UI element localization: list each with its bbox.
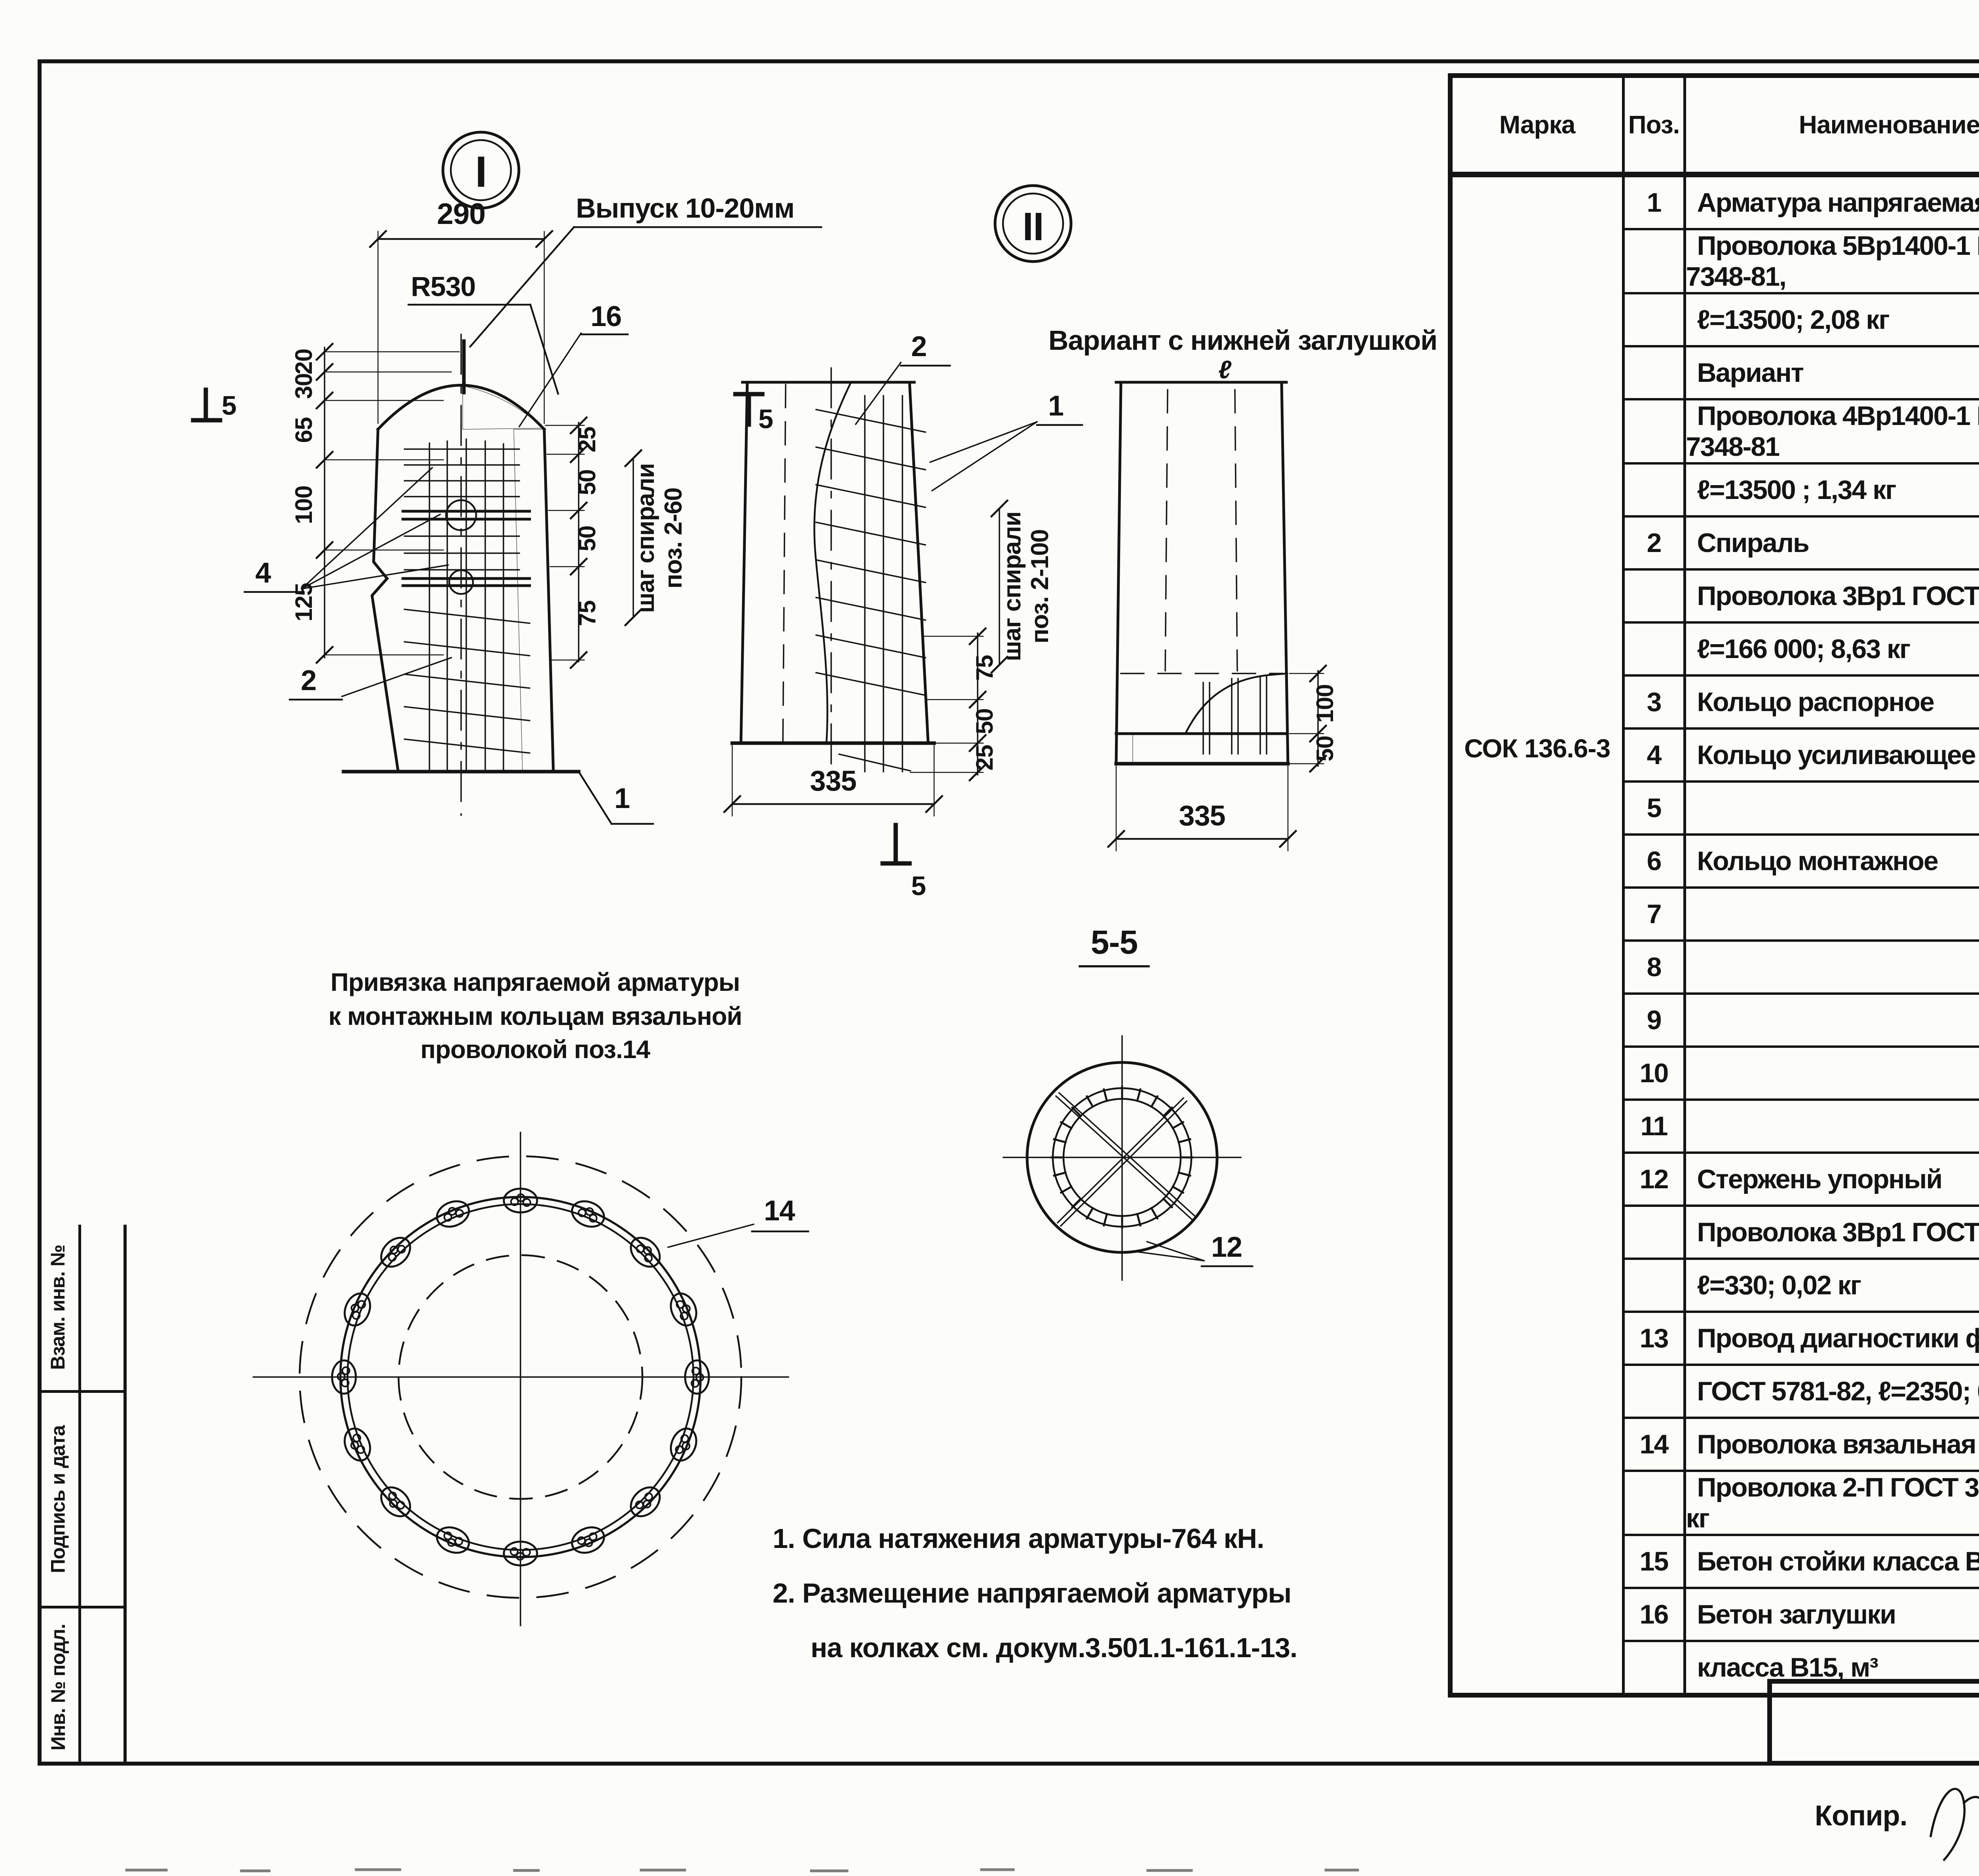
cell-poz: 5 [1623, 782, 1685, 835]
cell-name: Проволока вязальная [1685, 1418, 1979, 1471]
cell-poz: 6 [1623, 835, 1685, 888]
cell-poz: 2 [1623, 516, 1685, 569]
drawing-sheet: I 290 R530 Выпуск 10-20мм 16 [0, 0, 1979, 1876]
cell-name: ℓ=13500; 2,08 кг [1685, 293, 1979, 346]
cell-name: Кольцо усиливающееКУ1 [1685, 728, 1979, 782]
cell-poz [1623, 1259, 1685, 1312]
cell-name: ℓ=166 000; 8,63 кг [1685, 622, 1979, 675]
cell-name: КУ 2 [1685, 782, 1979, 835]
cell-name: Проволока 2-П ГОСТ 3282-74, кг [1685, 1471, 1979, 1535]
cell-name: Проволока 3Вр1 ГОСТ 6727-80, [1685, 1206, 1979, 1259]
margin-stamp-labels: Взам. инв. № Подпись и дата Инв. № подл. [38, 1225, 81, 1766]
cell-poz: 8 [1623, 941, 1685, 994]
cell-name: Проволока 5Вр1400-1 ГОСТ 7348-81, [1685, 229, 1979, 293]
cell-poz: 13 [1623, 1312, 1685, 1365]
cell-poz: 11 [1623, 1100, 1685, 1153]
spec-table-wrap: Марка Поз. Наименование Кол. Обозначение… [1448, 73, 1979, 1698]
cell-name: Провод диагностики ф6 АI [1685, 1312, 1979, 1365]
header-poz: Поз. [1623, 76, 1685, 175]
cell-name: КМ8 [1685, 994, 1979, 1047]
cell-name: КМ 9 [1685, 1047, 1979, 1100]
cell-poz: 10 [1623, 1047, 1685, 1100]
cell-poz: 9 [1623, 994, 1685, 1047]
cell-poz [1623, 293, 1685, 346]
cell-poz: 15 [1623, 1535, 1685, 1588]
spec-row: СОК 136.6-31Арматура напрягаемая1978 [1450, 175, 1979, 229]
cell-poz [1623, 1641, 1685, 1695]
cell-poz [1623, 569, 1685, 622]
cell-name: Проволока 3Вр1 ГОСТ 6727-80, [1685, 569, 1979, 622]
spec-header-row: Марка Поз. Наименование Кол. Обозначение… [1450, 76, 1979, 175]
cell-name: Арматура напрягаемая [1685, 175, 1979, 229]
stamp-label-inv: Инв. № подл. [47, 1624, 70, 1751]
cell-name: Стержень упорный [1685, 1153, 1979, 1206]
cell-poz: 7 [1623, 888, 1685, 941]
copy-label: Копир. [1815, 1800, 1907, 1832]
stamp-label-podpis: Подпись и дата [47, 1425, 70, 1573]
cell-poz [1623, 1206, 1685, 1259]
header-marka: Марка [1450, 76, 1623, 175]
cell-name: ℓ=13500 ; 1,34 кг [1685, 463, 1979, 516]
cell-poz: 1 [1623, 175, 1685, 229]
cell-poz: 3 [1623, 675, 1685, 728]
spec-table: Марка Поз. Наименование Кол. Обозначение… [1448, 73, 1979, 1698]
cell-name: КМ6 [1685, 941, 1979, 994]
stamp-label-vzam: Взам. инв. № [47, 1245, 70, 1370]
cell-name: КМ 5 [1685, 888, 1979, 941]
cell-name: ГОСТ 5781-82, ℓ=2350; 0,52 кг [1685, 1365, 1979, 1418]
stamp-cell-inv: Инв. № подл. [38, 1609, 78, 1766]
marka-cell: СОК 136.6-3 [1450, 175, 1623, 1695]
cell-poz [1623, 346, 1685, 399]
margin-stamp: Взам. инв. № Подпись и дата Инв. № подл. [38, 1225, 127, 1766]
cell-poz: 14 [1623, 1418, 1685, 1471]
stamp-cell-podpis: Подпись и дата [38, 1393, 78, 1609]
cell-poz [1623, 229, 1685, 293]
cell-poz [1623, 622, 1685, 675]
cell-name: Кольцо монтажноеКМ 2 [1685, 835, 1979, 888]
cell-poz: 12 [1623, 1153, 1685, 1206]
cell-name: Бетон заглушки [1685, 1588, 1979, 1641]
copier-signature [1931, 1789, 1979, 1860]
marka-value: СОК 136.6-3 [1453, 733, 1622, 763]
stamp-cell-vzam: Взам. инв. № [38, 1225, 78, 1393]
cell-poz [1623, 1471, 1685, 1535]
cell-poz: 4 [1623, 728, 1685, 782]
cell-poz [1623, 463, 1685, 516]
cell-name: ℓ=330; 0,02 кг [1685, 1259, 1979, 1312]
scan-artifact-dashes [127, 1870, 1358, 1871]
cell-name: КМ7 [1685, 1100, 1979, 1153]
cell-name: Бетон стойки класса В40, м³ [1685, 1535, 1979, 1588]
cell-name: Проволока 4Вр1400-1 ГОСТ 7348-81 [1685, 399, 1979, 463]
cell-name: Спираль [1685, 516, 1979, 569]
title-block: 3.501.1-161.1-3 Лист 2 [1767, 1679, 1979, 1766]
header-name: Наименование [1685, 76, 1979, 175]
cell-poz [1623, 399, 1685, 463]
cell-poz: 16 [1623, 1588, 1685, 1641]
spec-table-body: СОК 136.6-31Арматура напрягаемая1978Пров… [1450, 175, 1979, 1695]
cell-name: Вариант [1685, 346, 1979, 399]
margin-stamp-signature-col [81, 1225, 123, 1766]
cell-name: Кольцо распорноеКР1 [1685, 675, 1979, 728]
cell-poz [1623, 1365, 1685, 1418]
